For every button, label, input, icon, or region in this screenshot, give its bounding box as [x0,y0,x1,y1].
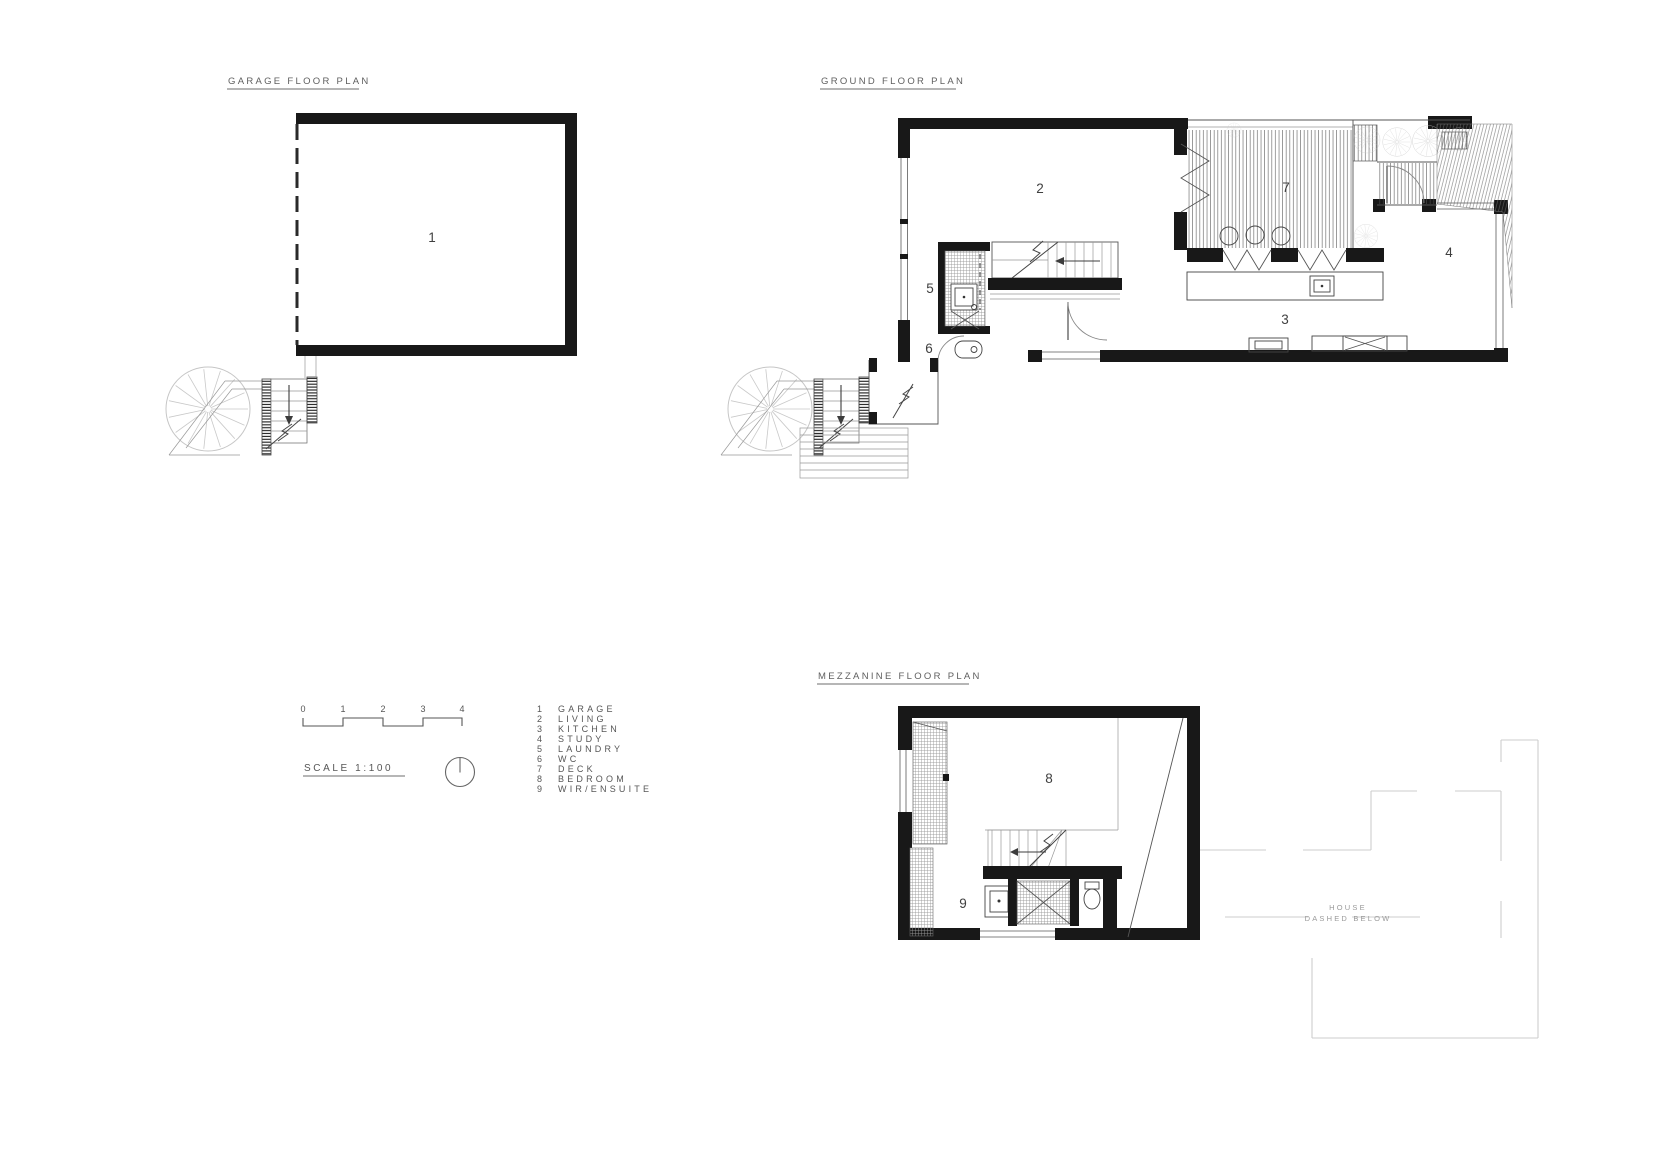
svg-text:GARAGE: GARAGE [558,704,616,714]
entry-vestibule [869,360,938,424]
svg-text:2: 2 [537,714,544,724]
island-bench [1312,336,1407,351]
scale-tick-3: 3 [420,704,425,714]
svg-text:STUDY: STUDY [558,734,605,744]
svg-text:9: 9 [537,784,544,794]
svg-text:WIR/ENSUITE: WIR/ENSUITE [558,784,652,794]
toilet [1085,882,1099,889]
legend-row: 9 WIR/ENSUITE [537,784,652,794]
svg-text:4: 4 [537,734,544,744]
tree-symbol [1383,128,1412,157]
svg-text:6: 6 [537,754,544,764]
garage-entry-stair [166,356,317,455]
ground-entry-stair [721,358,938,478]
ground-stair [988,241,1122,340]
room-label-living: 2 [1036,181,1044,196]
room-label-laundry: 5 [926,281,934,296]
bifold-door-south-2 [1298,250,1346,270]
scale-bar-rule [303,718,462,726]
walkway-and-study: 4 [1377,124,1512,348]
toilet [955,341,982,358]
mezzanine-stair [983,830,1122,879]
bifold-door-south-1 [1223,250,1271,270]
room-label-wir-ensuite: 9 [959,896,967,911]
floor-plan-drawing: GARAGE FLOOR PLAN 1 [0,0,1653,1169]
drawing-sheet: GARAGE FLOOR PLAN 1 [0,0,1653,1169]
ground-plan-title: GROUND FLOOR PLAN [821,76,965,87]
legend-row: 8 BEDROOM [537,774,627,784]
legend-row: 6 WC [537,754,579,764]
mezzanine-floor-plan: MEZZANINE FLOOR PLAN 8 [817,671,1538,1038]
scale-tick-1: 1 [340,704,345,714]
legend-row: 2 LIVING [537,714,607,724]
tree-symbol [166,367,250,451]
laundry-area: 5 [926,242,990,334]
mezzanine-screen [910,848,933,936]
legend-row: 1 GARAGE [537,704,616,714]
svg-text:5: 5 [537,744,544,754]
garage-walls [296,113,577,356]
house-dashed-note-line2: DASHED BELOW [1305,914,1392,923]
north-arrow-icon [446,758,475,787]
svg-text:7: 7 [537,764,544,774]
room-label-kitchen: 3 [1281,312,1289,327]
kitchen-area: 3 [1187,272,1407,352]
legend-row: 5 LAUNDRY [537,744,623,754]
scale-tick-4: 4 [459,704,464,714]
legend-row: 4 STUDY [537,734,605,744]
legend-row: 3 KITCHEN [537,724,620,734]
scale-tick-2: 2 [380,704,385,714]
ground-floor-plan: GROUND FLOOR PLAN 2 [721,76,1512,478]
svg-text:LIVING: LIVING [558,714,607,724]
svg-text:LAUNDRY: LAUNDRY [558,744,623,754]
walkway-path [1377,163,1437,204]
svg-text:8: 8 [537,774,544,784]
garage-plan-title: GARAGE FLOOR PLAN [228,76,371,87]
svg-text:BEDROOM: BEDROOM [558,774,627,784]
deck-boards [1187,130,1353,248]
scale-bar: 0 1 2 3 4 SCALE 1:100 [300,704,464,776]
house-dashed-note-line1: HOUSE [1329,903,1367,912]
toilet [1084,889,1100,909]
tree-symbol [728,367,812,451]
room-label-garage: 1 [428,230,436,245]
scale-tick-0: 0 [300,704,305,714]
room-legend: 1 GARAGE 2 LIVING 3 KITCHEN 4 STUDY 5 LA… [537,704,652,794]
tree-symbol [1354,224,1378,248]
room-label-study: 4 [1445,245,1453,260]
scale-label: SCALE 1:100 [304,763,393,774]
garden-slope-hatch [1437,124,1512,308]
house-dashed-below-outline [1200,740,1538,1038]
wc-area: 6 [925,336,982,360]
svg-text:KITCHEN: KITCHEN [558,724,620,734]
kitchen-bench [1187,272,1383,300]
room-label-wc: 6 [925,341,933,356]
mezzanine-bay-window [910,722,949,936]
svg-text:WC: WC [558,754,579,764]
planter-box [1353,125,1377,161]
svg-text:DECK: DECK [558,764,596,774]
garage-floor-plan: GARAGE FLOOR PLAN 1 [166,76,577,455]
room-label-bedroom: 8 [1045,771,1053,786]
void-line [1128,718,1183,937]
svg-text:3: 3 [537,724,544,734]
door-swing-arc [1068,302,1107,340]
mezzanine-plan-title: MEZZANINE FLOOR PLAN [818,671,982,682]
svg-text:1: 1 [537,704,544,714]
room-label-deck: 7 [1282,180,1290,195]
legend-row: 7 DECK [537,764,596,774]
